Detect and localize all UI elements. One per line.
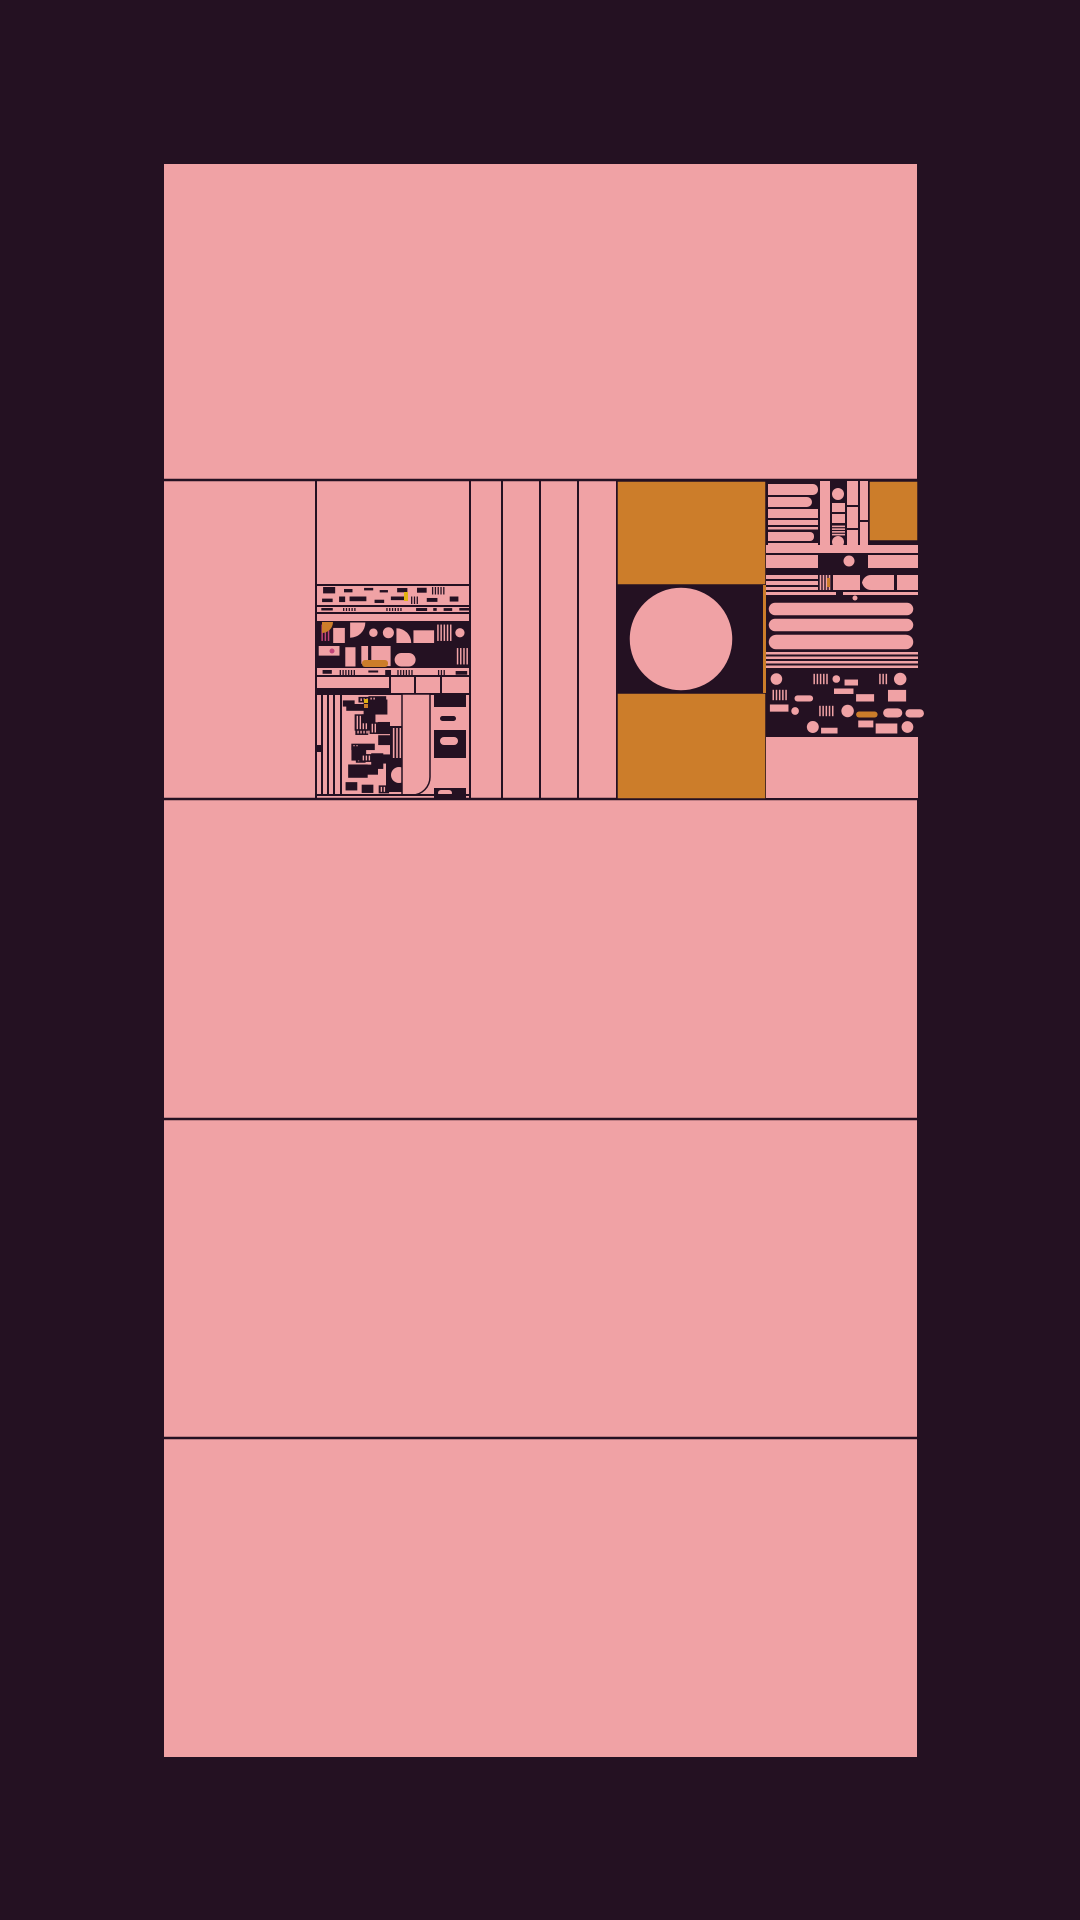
artwork-background <box>0 0 1080 1920</box>
right-section <box>766 481 924 799</box>
generative-artwork <box>0 0 1080 1920</box>
pink-panel <box>163 163 918 1758</box>
central-section <box>617 481 767 799</box>
